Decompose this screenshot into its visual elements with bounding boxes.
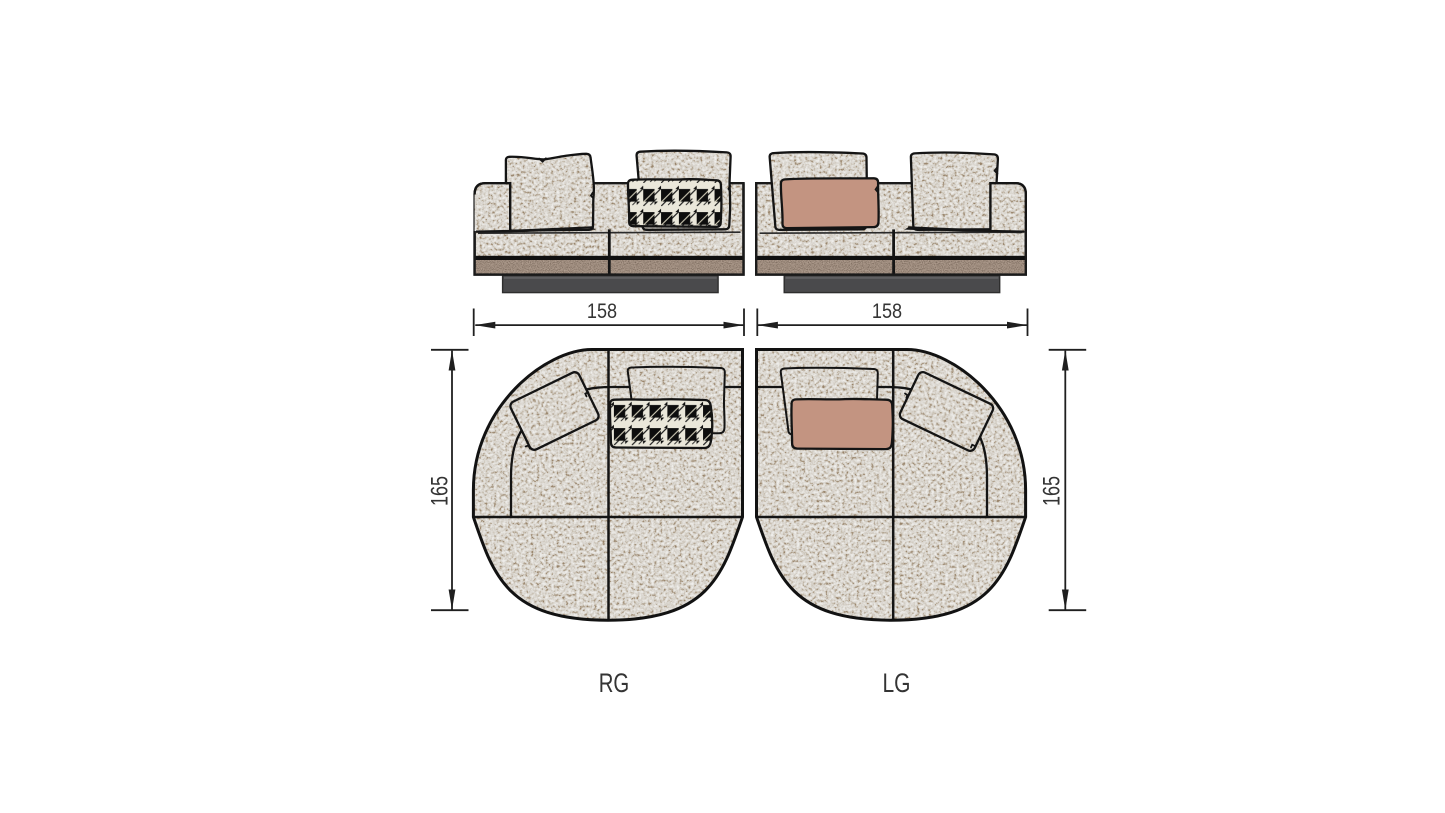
svg-text:158: 158 [872, 300, 902, 323]
svg-text:RG: RG [599, 668, 630, 698]
svg-text:165: 165 [1038, 476, 1065, 506]
svg-text:LG: LG [883, 668, 911, 698]
svg-text:158: 158 [587, 300, 617, 323]
svg-text:165: 165 [426, 476, 453, 506]
